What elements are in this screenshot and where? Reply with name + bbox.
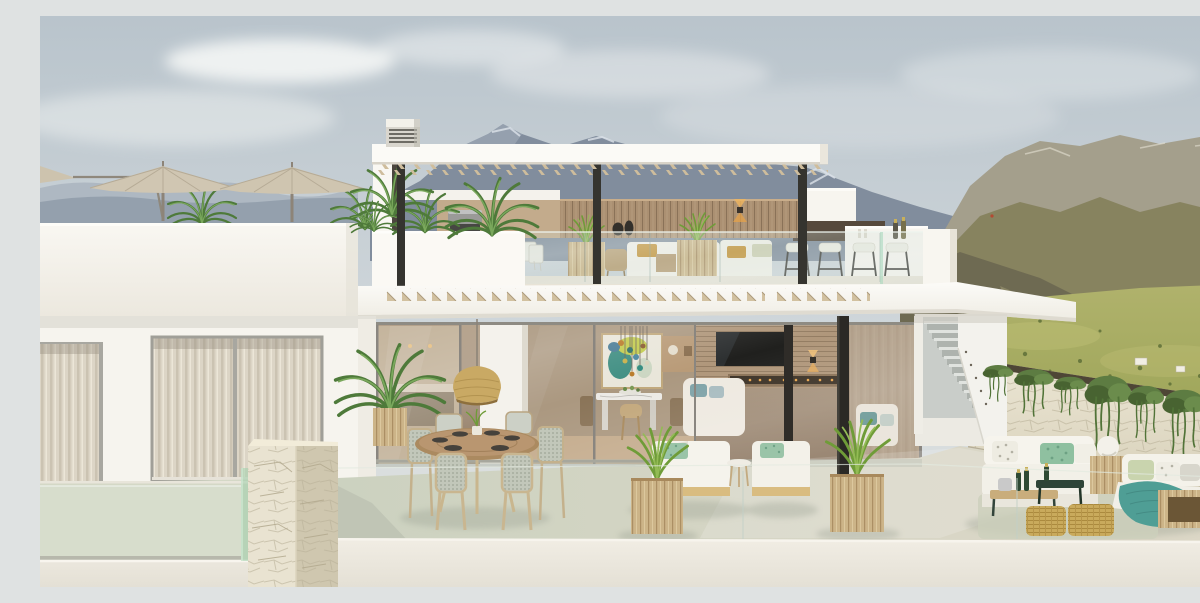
flag-dot	[990, 214, 993, 217]
deck-slats	[385, 288, 765, 301]
wicker-ottoman-2	[1068, 504, 1114, 536]
left-parapet-wall	[40, 223, 358, 323]
vent-cube	[386, 119, 420, 147]
stone-pillar	[241, 439, 338, 587]
pergola-fascia	[372, 144, 828, 165]
pergola-rafters	[378, 164, 828, 175]
window-1	[40, 342, 103, 482]
roof-glass-railing	[525, 232, 928, 284]
lounger-side-table	[727, 459, 751, 487]
wicker-ottoman-1	[1026, 506, 1066, 536]
open-cube-table	[1158, 490, 1200, 528]
roof-front-parapet	[372, 231, 525, 291]
sun-lounger-2	[752, 441, 810, 496]
villa-rendering: Daylight rendering of a contemporary whi…	[40, 16, 1200, 587]
